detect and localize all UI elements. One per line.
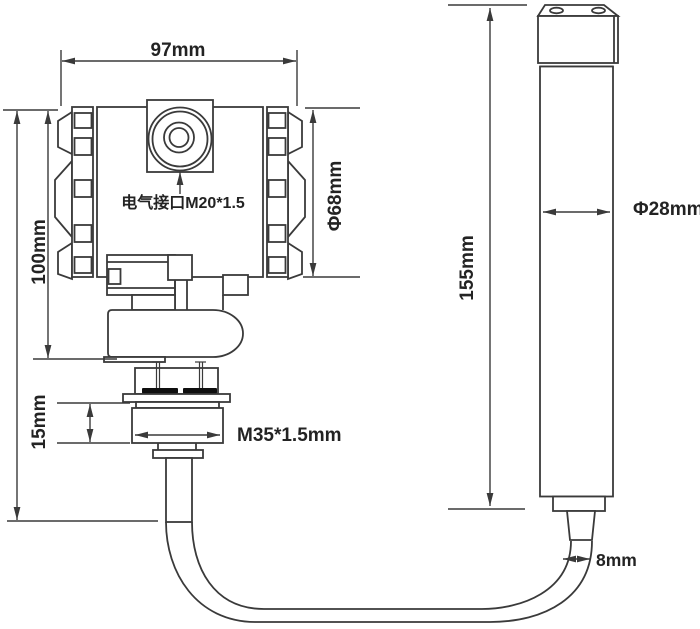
cable-inner-edge: [192, 522, 571, 609]
connection-cable: [166, 522, 592, 622]
bracket-neck: [132, 295, 175, 310]
dim-label-probe-diameter: Φ28mm: [633, 199, 700, 220]
dim-label-top-width: 97mm: [151, 40, 206, 61]
probe-cap: [538, 16, 618, 63]
seal-ring-right: [183, 388, 217, 394]
bracket-post: [168, 255, 192, 280]
label-electrical-port: 电气接口M20*1.5: [121, 193, 245, 212]
dim-label-thread-length: 15mm: [29, 395, 50, 450]
electrical-entry-port: [149, 108, 212, 171]
gland-tube-left: [166, 458, 192, 522]
dim-housing-diameter: Φ68mm: [303, 108, 360, 277]
dim-label-cable-diameter: 8mm: [596, 550, 637, 570]
seal-ring-left: [142, 388, 178, 394]
cooling-fins-right: [267, 107, 305, 279]
bracket-step: [223, 275, 248, 295]
probe-body: [540, 67, 613, 497]
technical-drawing-page: 97mm 100mm Φ68mm 电气接口M20*1.5 15mm M35*1.…: [0, 0, 700, 629]
transmitter-dimension-drawing: 97mm 100mm Φ68mm 电气接口M20*1.5 15mm M35*1.…: [0, 0, 700, 629]
probe-collar: [553, 497, 605, 512]
dim-thread-length: 15mm: [29, 395, 130, 450]
transmitter-housing: [55, 100, 305, 522]
flange: [123, 394, 230, 402]
cooling-fins-left: [55, 107, 93, 279]
thread-body: [132, 408, 223, 443]
dim-label-housing-diameter: Φ68mm: [325, 161, 346, 232]
dim-label-probe-length: 155mm: [457, 235, 478, 301]
dim-cable-diameter: 8mm: [563, 550, 637, 570]
cable-outer-edge: [166, 522, 592, 622]
process-connection: [104, 310, 243, 522]
port-outer-ring: [149, 108, 212, 171]
dim-label-housing-height: 100mm: [29, 219, 50, 285]
dim-top-width: 97mm: [61, 40, 297, 106]
dim-probe-length: 155mm: [448, 5, 527, 509]
submersible-probe: [538, 5, 618, 540]
dim-label-thread-spec: M35*1.5mm: [237, 425, 342, 446]
connection-barrel: [108, 310, 243, 357]
gland-tube-right: [567, 511, 595, 540]
gland-collar-left: [153, 450, 203, 458]
